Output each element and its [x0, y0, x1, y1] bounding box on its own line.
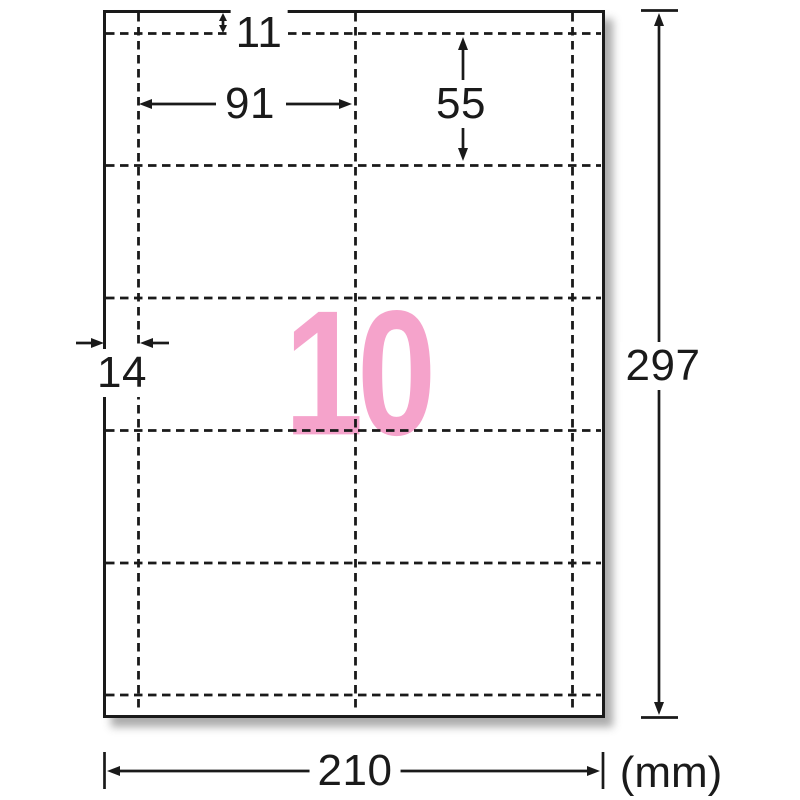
- dim-label-sheet-width: 210: [310, 747, 401, 795]
- dimension-lines-svg: [0, 0, 800, 800]
- dim-label-card-height: 55: [431, 80, 491, 128]
- unit-label: (mm): [620, 751, 723, 795]
- dim-label-sheet-height: 297: [621, 342, 706, 390]
- dim-label-card-width: 91: [220, 80, 280, 128]
- dim-label-side-margin: 14: [92, 349, 152, 397]
- side-margin-arrow: [76, 338, 169, 348]
- diagram-canvas: 10: [0, 0, 800, 800]
- top-margin-arrow: [219, 13, 227, 33]
- cut-guide-grid: [106, 13, 601, 713]
- dim-label-top-margin: 11: [231, 9, 288, 57]
